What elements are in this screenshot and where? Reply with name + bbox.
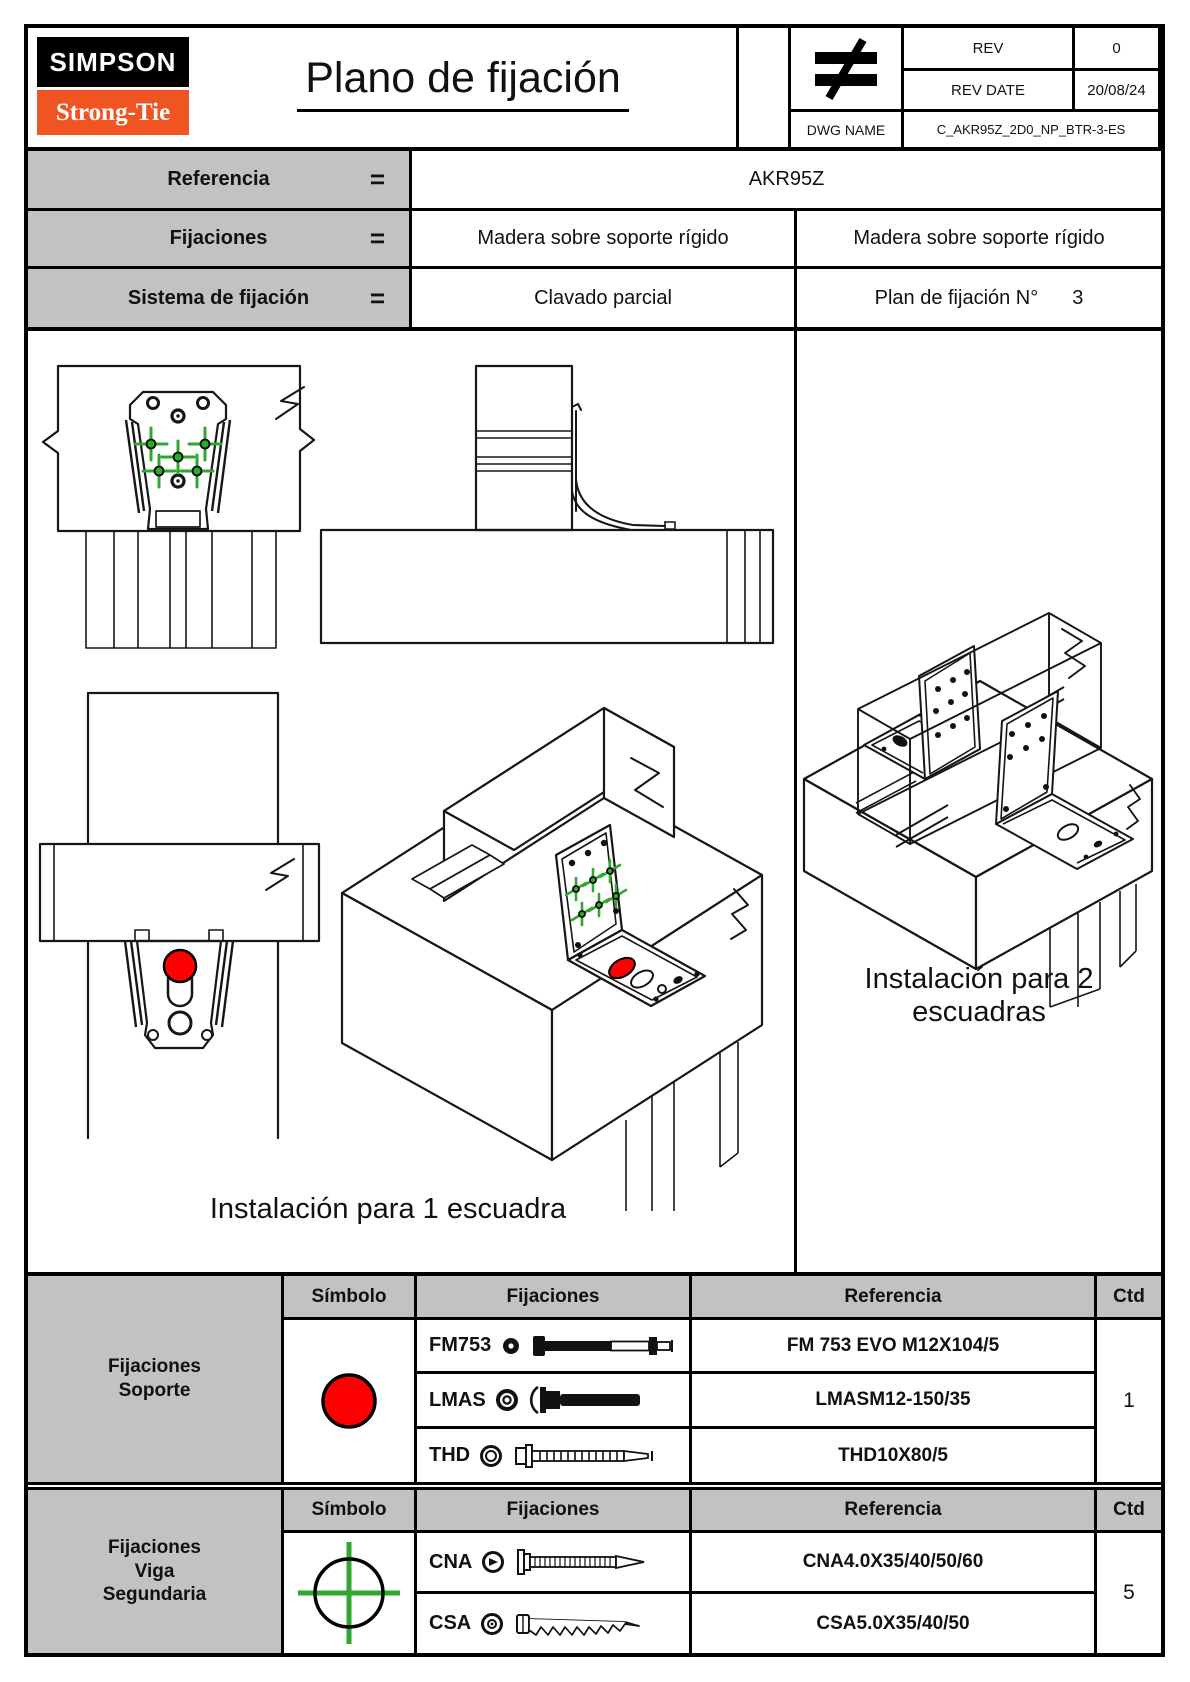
- fijaciones-label: Fijaciones: [170, 227, 268, 250]
- page-title: Plano de fijación: [297, 54, 629, 112]
- equals-sign: =: [370, 164, 385, 195]
- qty-value: 1: [1097, 1320, 1161, 1482]
- thd-symbol-icon: [479, 1444, 503, 1468]
- sistema-label-cell: Sistema de fijación =: [28, 269, 409, 327]
- col-header-fixings: Fijaciones: [417, 1490, 689, 1530]
- col-header-qty: Ctd: [1097, 1490, 1161, 1530]
- code-label: FM753: [429, 1334, 491, 1357]
- dwg-name-label: DWG NAME: [791, 112, 901, 147]
- page-title-wrap: Plano de fijación: [198, 54, 728, 112]
- table-separator: [28, 1482, 1161, 1490]
- group-line: Fijaciones: [108, 1355, 201, 1379]
- fixing-row-code: LMAS: [417, 1374, 689, 1426]
- not-equal-icon: [791, 28, 901, 109]
- rev-label: REV: [904, 28, 1072, 68]
- cna-symbol-icon: [481, 1550, 505, 1574]
- logo-strongtie: Strong-Tie: [37, 90, 189, 135]
- cna-nail-icon: [514, 1545, 664, 1579]
- drawing-area: Instalación para 1 escuadra Instalación …: [28, 331, 1161, 1276]
- fm753-symbol-icon: [500, 1335, 522, 1357]
- caption-one-bracket: Instalación para 1 escuadra: [128, 1193, 648, 1226]
- fijaciones-label-cell: Fijaciones =: [28, 211, 409, 266]
- header-divider: [736, 28, 739, 147]
- fixing-row-reference: FM 753 EVO M12X104/5: [692, 1320, 1094, 1371]
- logo-simpson: SIMPSON: [37, 37, 189, 87]
- caption-two-brackets: Instalación para 2 escuadras: [800, 963, 1158, 1029]
- fixing-row-reference: LMASM12-150/35: [692, 1374, 1094, 1426]
- group-line: Segundaria: [103, 1583, 206, 1607]
- lmas-anchor-icon: [528, 1383, 678, 1417]
- plan-number-label: Plan de fijación N°: [875, 287, 1039, 310]
- col-header-qty: Ctd: [1097, 1276, 1161, 1317]
- group-line: Fijaciones: [108, 1536, 201, 1560]
- fixing-row-reference: CSA5.0X35/40/50: [692, 1594, 1094, 1653]
- plan-number-cell: Plan de fijación N° 3: [797, 269, 1161, 327]
- qty-value: 5: [1097, 1533, 1161, 1653]
- reference-info-table: Referencia = AKR95Z Fijaciones = Madera …: [28, 151, 1161, 331]
- group-label-support: Fijaciones Soporte: [28, 1276, 281, 1482]
- sistema-value: Clavado parcial: [412, 269, 794, 327]
- equals-sign: =: [370, 283, 385, 314]
- fixing-row-code: THD: [417, 1429, 689, 1482]
- code-label: THD: [429, 1444, 470, 1467]
- iso-two-brackets-drawing: [800, 589, 1160, 1014]
- plan-number-value: 3: [1072, 287, 1083, 310]
- rev-date-label: REV DATE: [904, 71, 1072, 109]
- fixing-row-code: FM753: [417, 1320, 689, 1371]
- group-label-secondary-beam: Fijaciones Viga Segundaria: [28, 1490, 281, 1653]
- group-line: Viga: [135, 1560, 175, 1584]
- green-crosshair-icon: [284, 1533, 414, 1653]
- fixing-row-code: CNA: [417, 1533, 689, 1591]
- support-fixings-table: Fijaciones Soporte Símbolo Fijaciones Re…: [28, 1276, 1161, 1482]
- drawing-area-divider: [794, 331, 797, 1272]
- rev-value: 0: [1075, 28, 1158, 68]
- caption-two-line1: Instalación para 2: [800, 963, 1158, 996]
- referencia-label: Referencia: [167, 168, 269, 191]
- group-line: Soporte: [119, 1379, 191, 1403]
- col-header-symbol: Símbolo: [284, 1490, 414, 1530]
- sheet-frame: SIMPSON Strong-Tie Plano de fijación REV…: [24, 24, 1165, 1657]
- fijaciones-value-right: Madera sobre soporte rígido: [797, 211, 1161, 266]
- fijaciones-value-left: Madera sobre soporte rígido: [412, 211, 794, 266]
- fixing-row-reference: CNA4.0X35/40/50/60: [692, 1533, 1094, 1591]
- csa-symbol-icon: [480, 1612, 504, 1636]
- equals-sign: =: [370, 223, 385, 254]
- csa-screw-icon: [513, 1607, 663, 1641]
- col-header-reference: Referencia: [692, 1276, 1094, 1317]
- fm753-bolt-icon: [531, 1329, 681, 1363]
- referencia-label-cell: Referencia =: [28, 151, 409, 208]
- drawing-sheet: SIMPSON Strong-Tie Plano de fijación REV…: [0, 0, 1190, 1682]
- sistema-label: Sistema de fijación: [128, 287, 309, 310]
- fixing-row-reference: THD10X80/5: [692, 1429, 1094, 1482]
- dwg-name-value: C_AKR95Z_2D0_NP_BTR-3-ES: [904, 112, 1158, 147]
- secondary-beam-fixings-table: Fijaciones Viga Segundaria Símbolo Fijac…: [28, 1490, 1161, 1653]
- side-view-drawing: [313, 359, 793, 674]
- col-header-symbol: Símbolo: [284, 1276, 414, 1317]
- col-header-fixings: Fijaciones: [417, 1276, 689, 1317]
- iso-one-bracket-drawing: [326, 683, 771, 1218]
- code-label: CNA: [429, 1551, 472, 1574]
- plan-view-drawing: [38, 359, 338, 674]
- referencia-value: AKR95Z: [412, 151, 1161, 208]
- simpson-strongtie-logo: SIMPSON Strong-Tie: [37, 37, 189, 137]
- rev-date-value: 20/08/24: [1075, 71, 1158, 109]
- code-label: CSA: [429, 1612, 471, 1635]
- front-view-drawing: [38, 683, 338, 1143]
- code-label: LMAS: [429, 1389, 486, 1412]
- caption-two-line2: escuadras: [800, 996, 1158, 1029]
- anchor-position-marker: [164, 950, 196, 982]
- fixing-row-code: CSA: [417, 1594, 689, 1653]
- revision-table: REV 0 REV DATE 20/08/24 DWG NAME C_AKR95…: [788, 28, 1161, 147]
- lmas-symbol-icon: [495, 1388, 519, 1412]
- title-block: SIMPSON Strong-Tie Plano de fijación REV…: [28, 28, 1161, 151]
- col-header-reference: Referencia: [692, 1490, 1094, 1530]
- thd-screw-icon: [512, 1439, 662, 1473]
- red-circle-icon: [284, 1320, 414, 1482]
